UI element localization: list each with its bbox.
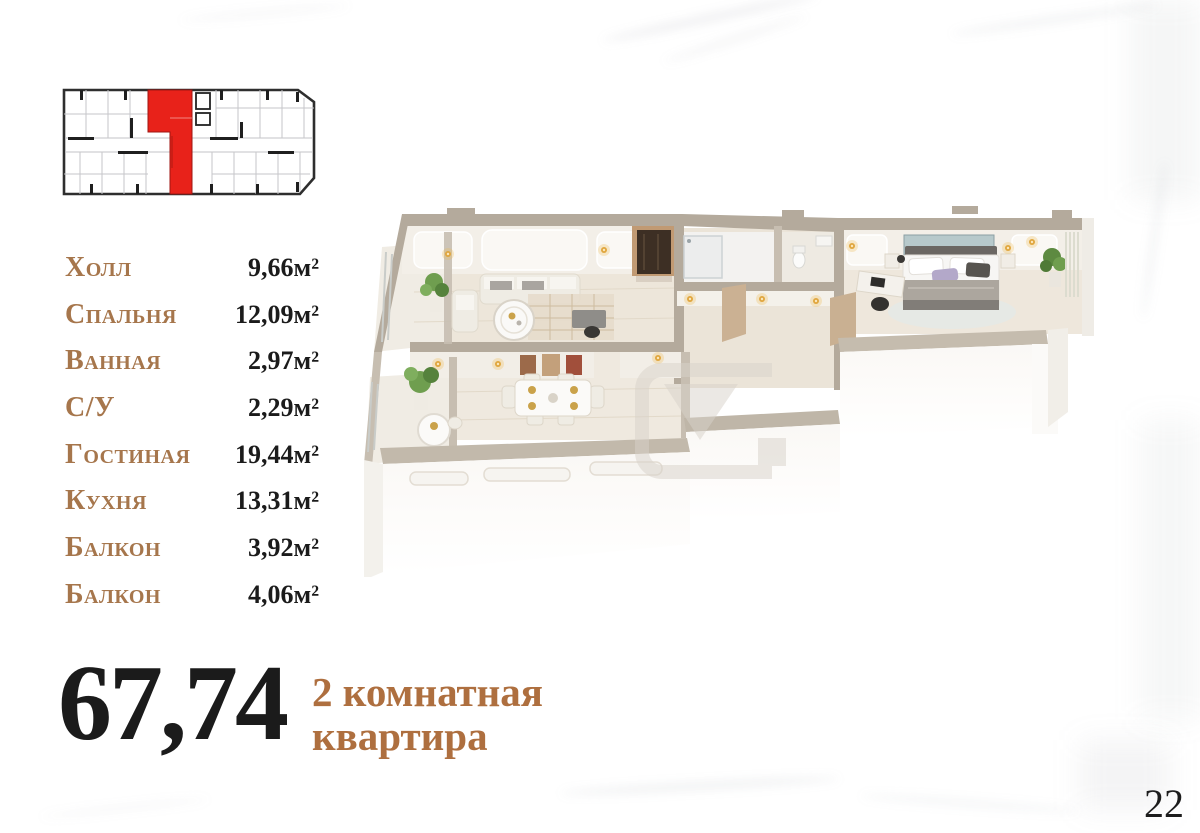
room-row: Балкон 3,92м² <box>65 532 319 579</box>
room-row: Балкон 4,06м² <box>65 579 319 626</box>
room-name: С/У <box>65 392 115 424</box>
page-number: 22 <box>1144 780 1184 827</box>
room-row: Гостиная 19,44м² <box>65 439 319 486</box>
wall-lamp-icon <box>492 358 504 370</box>
room-row: Спальня 12,09м² <box>65 299 319 346</box>
marble-texture <box>560 775 840 798</box>
apartment-type-line2: квартира <box>312 714 543 758</box>
room-area: 19,44м² <box>235 440 319 470</box>
marble-texture <box>1139 160 1169 320</box>
marble-texture <box>180 3 350 24</box>
wall-lamp-icon <box>810 295 822 307</box>
apartment-type: 2 комнатная квартира <box>312 656 543 759</box>
wall-lamp-icon <box>652 352 664 364</box>
room-area: 2,97м² <box>248 346 319 376</box>
room-name: Гостиная <box>65 439 190 471</box>
room-row: Холл 9,66м² <box>65 252 319 299</box>
marble-texture <box>663 13 808 65</box>
room-name: Ванная <box>65 345 161 377</box>
room-area: 9,66м² <box>248 253 319 283</box>
room-name: Балкон <box>65 579 161 611</box>
nightstand <box>885 254 899 268</box>
room-area: 13,31м² <box>235 486 319 516</box>
wall-lamp-icon <box>442 248 454 260</box>
room-row: Ванная 2,97м² <box>65 345 319 392</box>
coffee-table <box>494 300 534 340</box>
wall-lamp-icon <box>1026 236 1038 248</box>
room-area: 2,29м² <box>248 393 319 423</box>
room-area: 3,92м² <box>248 533 319 563</box>
marble-texture <box>1140 420 1200 720</box>
wall-lamp-icon <box>432 358 444 370</box>
marble-texture <box>40 796 210 820</box>
room-name: Балкон <box>65 532 161 564</box>
marble-texture <box>951 1 1160 37</box>
desk-chair <box>871 297 889 311</box>
floorplan-3d-render <box>352 202 1112 577</box>
entrance-door <box>632 226 676 282</box>
room-area: 4,06м² <box>248 580 319 610</box>
marble-texture <box>860 792 1080 814</box>
wall-lamp-icon <box>846 240 858 252</box>
floorplan-slide: Холл 9,66м² Спальня 12,09м² Ванная 2,97м… <box>0 0 1200 833</box>
wall-lamp-icon <box>1002 242 1014 254</box>
room-name: Спальня <box>65 299 177 331</box>
room-area: 12,09м² <box>235 300 319 330</box>
marble-texture <box>602 0 819 45</box>
nightstand <box>1001 254 1015 268</box>
building-plan-schematic <box>60 78 320 208</box>
bed <box>903 246 999 310</box>
room-list: Холл 9,66м² Спальня 12,09м² Ванная 2,97м… <box>65 252 319 626</box>
wall-lamp-icon <box>756 293 768 305</box>
total-area: 67,74 <box>58 656 286 751</box>
wall-lamp-icon <box>598 244 610 256</box>
marble-texture <box>1130 0 1200 200</box>
room-name: Холл <box>65 252 132 284</box>
wall-lamp-icon <box>684 293 696 305</box>
room-name: Кухня <box>65 485 147 517</box>
total-block: 67,74 2 комнатная квартира <box>58 656 543 759</box>
apartment-type-line1: 2 комнатная <box>312 670 543 714</box>
room-row: С/У 2,29м² <box>65 392 319 439</box>
room-row: Кухня 13,31м² <box>65 485 319 532</box>
